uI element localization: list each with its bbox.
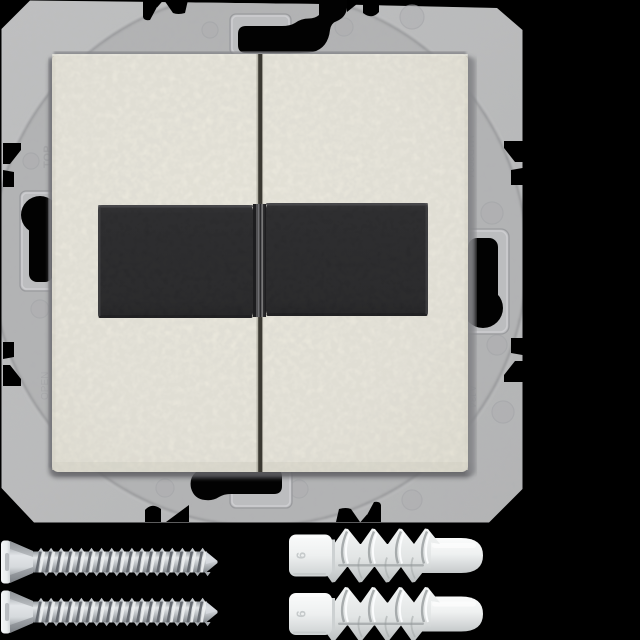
svg-text:6: 6 <box>294 610 309 617</box>
svg-text:6: 6 <box>294 552 309 559</box>
